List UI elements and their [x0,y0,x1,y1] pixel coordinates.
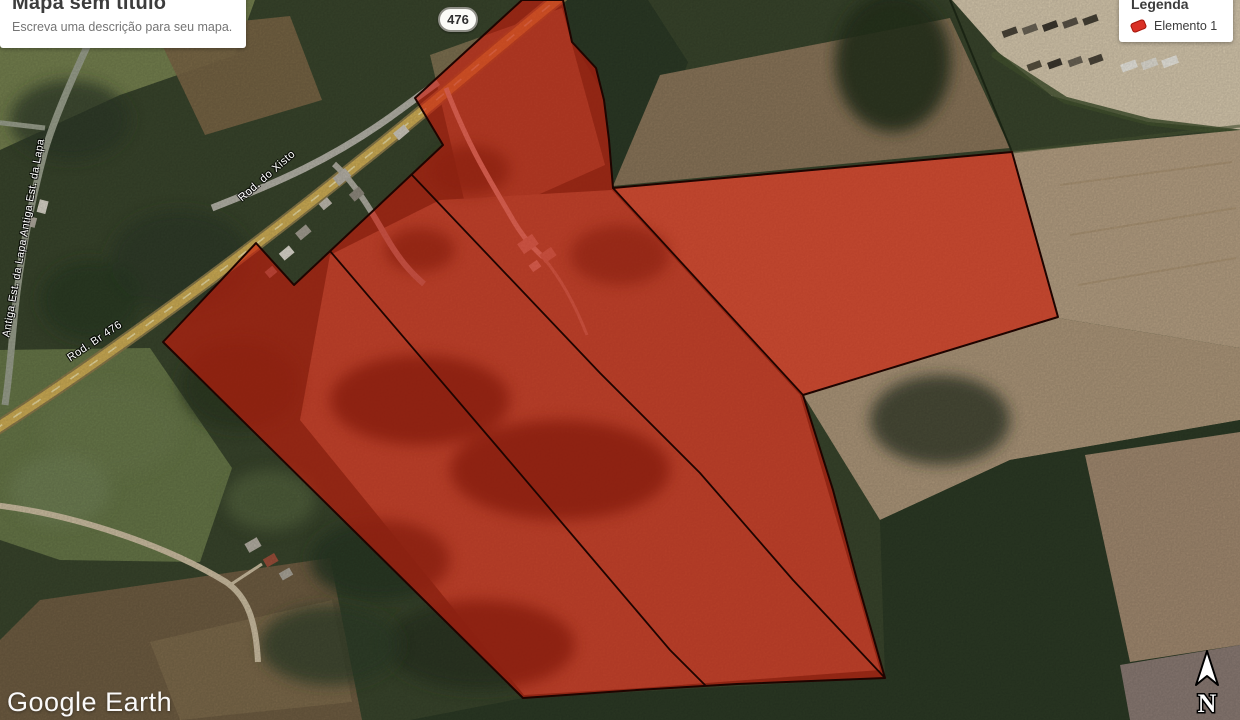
satellite-map-canvas[interactable] [0,0,1240,720]
map-title-panel[interactable]: Mapa sem título Escreva uma descrição pa… [0,0,246,48]
google-earth-map-view[interactable]: 476 Rod. do Xisto Rod. Br 476 Antiga Est… [0,0,1240,720]
map-title: Mapa sem título [12,0,234,15]
route-shield-badge: 476 [438,7,478,32]
north-label: N [1198,689,1217,718]
polygon-swatch-icon [1130,19,1148,34]
legend-item-elemento-1[interactable]: Elemento 1 [1131,19,1223,33]
route-number: 476 [447,12,469,27]
legend-panel[interactable]: Legenda Elemento 1 [1119,0,1233,42]
map-subtitle: Escreva uma descrição para seu mapa. [12,20,234,34]
legend-header: Legenda [1131,0,1223,12]
google-earth-watermark: Google Earth [7,687,172,718]
legend-item-label: Elemento 1 [1154,19,1217,33]
north-indicator[interactable]: N [1190,648,1224,718]
north-arrow-icon [1196,651,1218,685]
